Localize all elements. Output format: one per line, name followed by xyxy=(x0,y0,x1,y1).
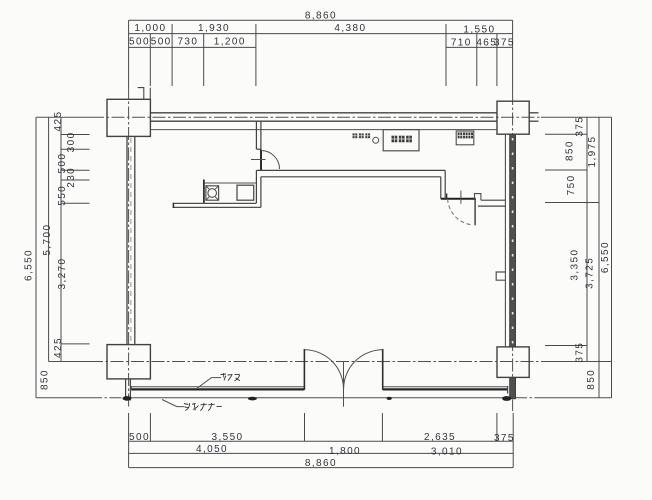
svg-text:730: 730 xyxy=(177,36,198,47)
svg-text:425: 425 xyxy=(53,337,64,358)
svg-text:375: 375 xyxy=(494,38,515,49)
svg-text:1,930: 1,930 xyxy=(198,23,230,34)
svg-text:425: 425 xyxy=(53,111,64,132)
svg-text:1,800: 1,800 xyxy=(329,446,361,457)
svg-text:750: 750 xyxy=(566,174,577,195)
svg-text:375: 375 xyxy=(494,433,515,444)
svg-text:1,975: 1,975 xyxy=(587,135,598,167)
svg-text:1,200: 1,200 xyxy=(214,36,246,47)
svg-text:1,550: 1,550 xyxy=(463,24,495,35)
svg-text:1,000: 1,000 xyxy=(134,23,166,34)
svg-text:500: 500 xyxy=(129,432,150,443)
svg-text:8,860: 8,860 xyxy=(305,458,337,469)
svg-text:3,350: 3,350 xyxy=(570,249,581,281)
svg-text:2,635: 2,635 xyxy=(424,432,456,443)
svg-text:500: 500 xyxy=(151,36,172,47)
svg-text:230: 230 xyxy=(66,167,77,188)
svg-text:850: 850 xyxy=(586,369,597,390)
svg-text:4,050: 4,050 xyxy=(196,444,228,455)
svg-text:375: 375 xyxy=(574,342,585,363)
svg-text:3,010: 3,010 xyxy=(431,446,463,457)
svg-text:375: 375 xyxy=(574,116,585,137)
svg-text:550: 550 xyxy=(57,185,68,206)
svg-text:5,700: 5,700 xyxy=(42,224,53,256)
svg-text:3,270: 3,270 xyxy=(57,257,68,289)
svg-text:3,725: 3,725 xyxy=(584,257,595,289)
svg-text:300: 300 xyxy=(66,131,77,152)
svg-text:6,550: 6,550 xyxy=(24,249,35,281)
svg-text:500: 500 xyxy=(129,36,150,47)
svg-text:850: 850 xyxy=(565,140,576,161)
svg-text:850: 850 xyxy=(40,369,51,390)
svg-text:710: 710 xyxy=(451,38,472,49)
svg-text:8,860: 8,860 xyxy=(305,11,337,22)
svg-text:3,550: 3,550 xyxy=(211,432,243,443)
svg-text:4,380: 4,380 xyxy=(334,23,366,34)
svg-text:6,550: 6,550 xyxy=(600,241,611,273)
